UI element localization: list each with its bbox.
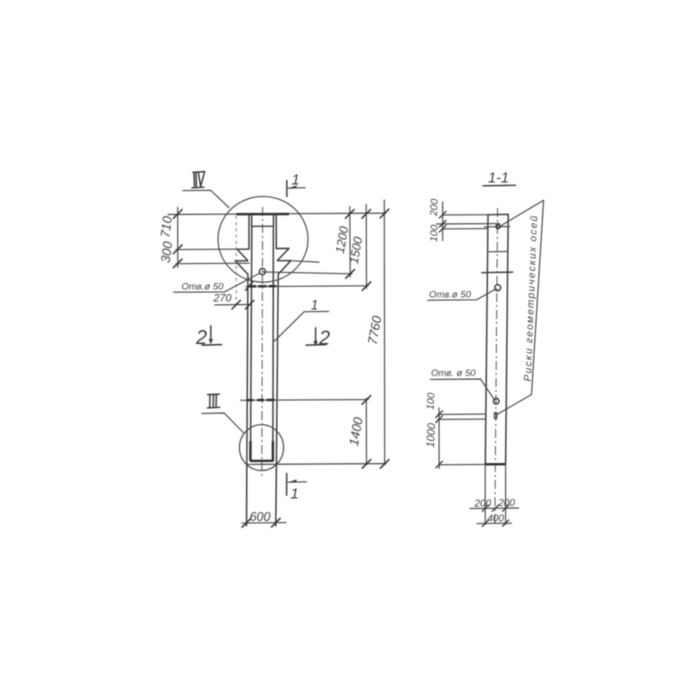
svg-text:7760: 7760: [365, 314, 385, 346]
svg-text:200: 200: [429, 198, 441, 217]
svg-text:270: 270: [212, 293, 231, 305]
svg-text:200: 200: [473, 498, 491, 509]
svg-text:2: 2: [318, 328, 330, 350]
svg-text:1000: 1000: [425, 422, 438, 448]
svg-text:Отв. ø 50: Отв. ø 50: [431, 368, 476, 379]
svg-text:1-1: 1-1: [488, 171, 509, 187]
svg-text:400: 400: [487, 513, 504, 524]
svg-text:200: 200: [497, 498, 515, 509]
svg-text:Отв.ø 50: Отв.ø 50: [182, 282, 225, 293]
svg-text:300: 300: [158, 240, 176, 264]
svg-text:1: 1: [311, 298, 319, 313]
svg-text:710: 710: [157, 214, 175, 238]
svg-text:100: 100: [426, 392, 438, 410]
svg-text:1: 1: [291, 172, 299, 189]
svg-text:1: 1: [290, 486, 298, 503]
svg-text:100: 100: [429, 224, 441, 242]
svg-text:1400: 1400: [346, 415, 366, 447]
svg-text:600: 600: [250, 510, 271, 524]
svg-text:Отв.ø 50: Отв.ø 50: [429, 290, 472, 301]
